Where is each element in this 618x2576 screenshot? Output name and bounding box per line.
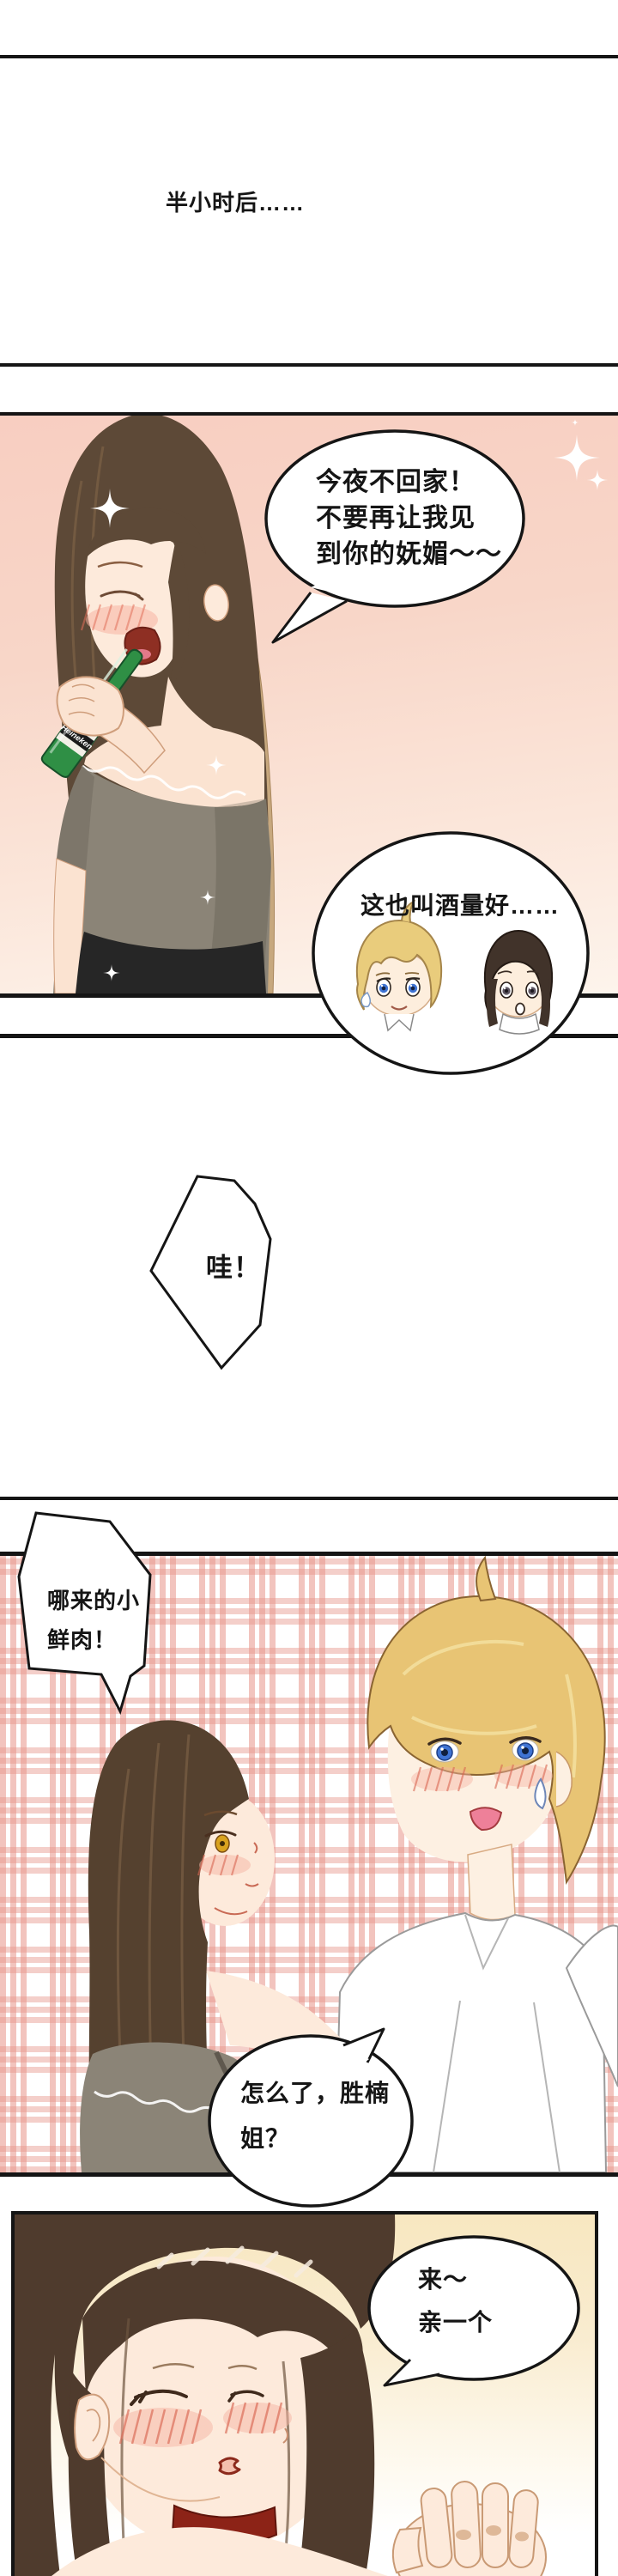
speech-bubble-main xyxy=(266,431,524,642)
bubble-main-line-1: 今夜不回家！ xyxy=(316,468,476,496)
kiss-bubble-line-2: 亲一个 xyxy=(418,2310,493,2336)
speech-bubble-observers xyxy=(313,833,588,1073)
kiss-bubble-line-1: 来～ xyxy=(418,2267,468,2293)
chibi-darkhair-boy xyxy=(485,931,552,1034)
woman-hand xyxy=(58,677,124,735)
narration-text: 半小时后…… xyxy=(166,191,305,216)
reply-bubble-line-2: 姐？ xyxy=(240,2126,290,2153)
guy-hand xyxy=(393,2481,546,2576)
bubble-main-line-2: 不要再让我见 xyxy=(316,504,476,532)
shout-bubble-line-1: 哪来的小 xyxy=(47,1589,140,1613)
comic-page: Heineken xyxy=(0,0,618,2576)
bubble-main-line-3: 到你的妩媚～～ xyxy=(316,540,502,568)
interjection-text: 哇！ xyxy=(206,1254,261,1283)
reply-bubble-line-1: 怎么了，胜楠 xyxy=(240,2081,390,2107)
bubble-observers-text: 这也叫酒量好…… xyxy=(360,893,560,920)
shout-bubble-line-2: 鲜肉！ xyxy=(47,1628,117,1653)
comic-art: Heineken xyxy=(0,0,618,2576)
